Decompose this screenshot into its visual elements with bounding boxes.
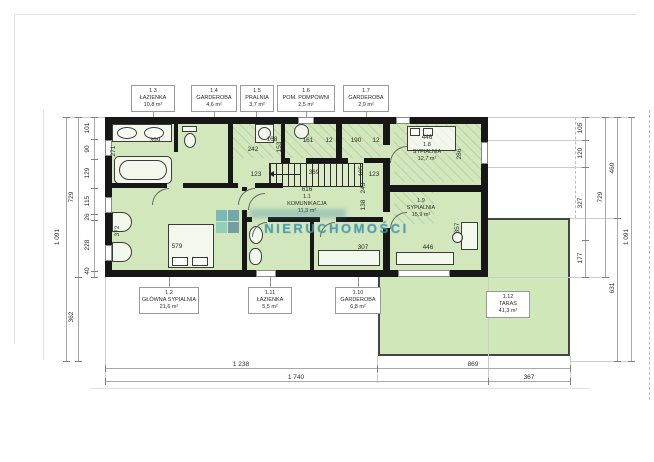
dim-tick xyxy=(582,140,589,141)
wall-corridor-top-seg xyxy=(255,183,283,188)
stairs-direction-line xyxy=(274,174,300,175)
dim-tick xyxy=(91,214,98,215)
dim-line xyxy=(585,117,586,277)
room-area: 2,5 m² xyxy=(280,102,332,109)
dim-line xyxy=(617,117,618,361)
room-area: 4,6 m² xyxy=(194,102,234,109)
extension-line xyxy=(488,117,631,118)
dim-stairs-length: 369 xyxy=(301,169,327,177)
dim-left-40: 40 xyxy=(84,261,92,281)
dim-bottom-367: 367 xyxy=(509,374,549,382)
extension-line xyxy=(488,140,585,141)
wall-outer-right xyxy=(481,117,488,277)
dim-left-26: 26 xyxy=(84,207,92,227)
room-id: 1.10 xyxy=(338,290,378,297)
toilet-tank xyxy=(182,126,197,132)
dim-bedroom19-height: 357 xyxy=(454,218,462,238)
desk-icon xyxy=(461,222,478,250)
pillow xyxy=(172,257,188,266)
room-area: 15,9 m² xyxy=(392,212,450,219)
dim-left-129: 129 xyxy=(84,163,92,183)
watermark-logo-icon xyxy=(216,222,227,233)
label-box-110: 1.10 GARDEROBA 6,8 m² xyxy=(335,287,381,314)
wall-top-rooms-bottom-seg xyxy=(364,158,390,163)
window xyxy=(105,245,112,261)
dim-right-177: 177 xyxy=(577,248,585,268)
dim-pralnia-width: 242 xyxy=(240,146,266,154)
label-box-12: 1.2 GŁÓWNA SYPIALNIA 21,6 m² xyxy=(139,287,199,314)
room-name: GARDEROBA xyxy=(338,297,378,304)
dim-tick xyxy=(628,117,635,118)
dim-line xyxy=(66,117,67,361)
wall-outer-top xyxy=(105,117,488,124)
room-name: PRALNIA xyxy=(243,95,271,102)
dim-garderoba10-width: 307 xyxy=(350,244,376,252)
leader-line xyxy=(169,277,170,287)
dim-tick xyxy=(614,361,621,362)
watermark-logo-icon xyxy=(228,210,239,221)
dim-tick xyxy=(602,117,609,118)
room-name: TARAS xyxy=(489,301,527,308)
armchair-icon xyxy=(112,242,132,262)
dim-bath-height: 271 xyxy=(110,141,118,161)
room-id: 1.1 xyxy=(275,194,339,201)
dim-tick xyxy=(63,117,70,118)
dim-left-101: 101 xyxy=(84,118,92,138)
dim-tick xyxy=(91,220,98,221)
room-area: 21,6 m² xyxy=(142,304,196,311)
room-id: 1.6 xyxy=(280,88,332,95)
dim-bottom-869: 869 xyxy=(453,361,493,369)
room-id: 1.5 xyxy=(243,88,271,95)
wardrobe-icon xyxy=(396,252,454,265)
dim-right-327: 327 xyxy=(577,193,585,213)
label-box-14: 1.4 GARDEROBA 4,6 m² xyxy=(191,85,237,112)
extension-line xyxy=(570,361,631,362)
watermark-logo-icon xyxy=(228,222,239,233)
room-name: KOMUNIKACJA xyxy=(275,201,339,208)
dim-tick xyxy=(614,218,621,219)
guide-line-bottom xyxy=(90,388,590,389)
room-area: 3,7 m² xyxy=(243,102,271,109)
wall-bath-garderoba xyxy=(228,117,233,187)
wall-pompownia-garderoba xyxy=(336,117,342,163)
wall-toilet-nook xyxy=(174,117,178,152)
dim-line xyxy=(631,117,632,361)
dim-bedroom18-width: 446 xyxy=(414,134,440,142)
dim-mainbedroom-width: 579 xyxy=(164,243,190,251)
room-id: 1.4 xyxy=(194,88,234,95)
room-area: 2,9 m² xyxy=(346,102,386,109)
dim-bedroom19-width: 446 xyxy=(415,244,441,252)
dim-tick xyxy=(582,167,589,168)
bathtub-inner xyxy=(119,160,167,180)
dim-tick xyxy=(91,277,98,278)
dim-line xyxy=(94,117,95,277)
dim-line xyxy=(105,381,570,382)
dim-tick xyxy=(570,378,571,385)
label-box-111: 1.11 ŁAZIENKA 5,5 m² xyxy=(248,287,292,314)
watermark-blurred-line xyxy=(250,209,346,218)
extension-line xyxy=(488,167,585,168)
dim-line xyxy=(605,117,606,277)
dim-right-729: 729 xyxy=(597,187,605,207)
dim-right-1091: 1 091 xyxy=(623,227,631,247)
dim-tick xyxy=(582,277,589,278)
wall-bedroom-right xyxy=(242,210,247,270)
window xyxy=(481,142,488,164)
room-area: 6,8 m² xyxy=(338,304,378,311)
wardrobe-icon xyxy=(318,250,380,266)
watermark-logo-icon xyxy=(216,210,227,221)
wall-spine-seg xyxy=(383,117,390,145)
dim-bath-width: 399 xyxy=(142,137,168,145)
dim-tick xyxy=(628,361,635,362)
room-id: 1.8 xyxy=(398,142,456,149)
dim-tick xyxy=(91,139,98,140)
dim-tick xyxy=(570,365,571,372)
dim-tick xyxy=(91,117,98,118)
wall-corridor-top-seg xyxy=(183,183,238,188)
dim-wall-12: 12 xyxy=(322,137,336,145)
dim-tick xyxy=(91,271,98,272)
dim-tick xyxy=(488,378,489,385)
dim-right-460: 460 xyxy=(609,158,617,178)
window xyxy=(298,117,314,124)
label-box-15: 1.5 PRALNIA 3,7 m² xyxy=(240,85,274,112)
room-area: 41,3 m² xyxy=(489,308,527,315)
pillow xyxy=(192,257,208,266)
room-id: 1.11 xyxy=(251,290,289,297)
room-name: GARDEROBA xyxy=(346,95,386,102)
dim-bedroom18-height: 286 xyxy=(456,144,464,164)
room-id: 1.9 xyxy=(392,198,450,205)
wall-top-rooms-bottom-seg xyxy=(306,158,348,163)
dim-left-228: 228 xyxy=(84,235,92,255)
dim-153: 153 xyxy=(276,137,284,157)
wall-spine-seg xyxy=(383,162,390,212)
room-name: SYPIALNIA xyxy=(392,205,450,212)
window xyxy=(396,117,410,124)
room-name: GARDEROBA xyxy=(194,95,234,102)
room-name: SYPIALNIA xyxy=(398,149,456,156)
sheet-dashed-right xyxy=(649,110,650,400)
label-box-17: 1.7 GARDEROBA 2,9 m² xyxy=(343,85,389,112)
window xyxy=(256,270,276,277)
dim-left-90: 90 xyxy=(84,139,92,159)
toilet-icon xyxy=(249,248,262,265)
watermark-brand-text: NIERUCHOMOŚCI xyxy=(244,221,429,236)
floor-plan-page: 399 271 168 242 153 161 12 190 12 446 28… xyxy=(0,0,654,462)
dim-left-729: 729 xyxy=(68,187,76,207)
dim-tick xyxy=(91,159,98,160)
leader-line xyxy=(270,277,271,287)
guide-line-left xyxy=(43,110,44,360)
dim-right-105: 105 xyxy=(577,118,585,138)
dim-bottom-1740: 1 740 xyxy=(276,374,316,382)
wall-bedrooms-divider xyxy=(390,185,481,192)
dim-tick xyxy=(614,117,621,118)
room-area: 12,7 m² xyxy=(398,156,456,163)
room-label-18: 1.8 SYPIALNIA 12,7 m² xyxy=(398,142,456,163)
dim-line xyxy=(78,117,79,361)
dim-left-1091: 1 091 xyxy=(54,227,62,247)
room-name: ŁAZIENKA xyxy=(134,95,172,102)
dim-left-362: 362 xyxy=(68,307,76,327)
leader-line xyxy=(358,277,359,287)
room-id: 1.12 xyxy=(489,294,527,301)
dim-138: 138 xyxy=(360,195,368,215)
sink-icon xyxy=(117,127,137,139)
terrace-door xyxy=(398,270,450,277)
extension-line xyxy=(570,218,617,219)
dim-line xyxy=(105,368,570,369)
dim-pompownia-width: 161 xyxy=(295,137,321,145)
dim-bottom-1238: 1 238 xyxy=(221,361,261,369)
dim-tick xyxy=(75,117,82,118)
dim-tick xyxy=(377,365,378,372)
room-name: POM. POMPOWNI xyxy=(280,95,332,102)
room-label-19: 1.9 SYPIALNIA 15,9 m² xyxy=(392,198,450,219)
sheet-border-left xyxy=(14,14,15,344)
stairs-arrow-icon xyxy=(269,171,274,177)
dim-tick xyxy=(91,188,98,189)
label-box-taras: 1.12 TARAS 41,3 m² xyxy=(486,291,530,318)
room-id: 1.7 xyxy=(346,88,386,95)
dim-tick xyxy=(105,365,106,372)
dim-tick xyxy=(105,378,106,385)
dim-tick xyxy=(602,277,609,278)
dim-tick xyxy=(75,361,82,362)
label-box-13: 1.3 ŁAZIENKA 10,8 m² xyxy=(131,85,175,112)
room-id: 1.3 xyxy=(134,88,172,95)
sheet-border-top xyxy=(14,14,636,15)
dim-right-631: 631 xyxy=(609,278,617,298)
dim-right-120: 120 xyxy=(577,143,585,163)
window xyxy=(105,197,112,213)
label-box-16: 1.6 POM. POMPOWNI 2,5 m² xyxy=(277,85,335,112)
dim-stairs-left: 123 xyxy=(246,171,266,179)
dim-tick xyxy=(63,361,70,362)
dim-mainbedroom-height: 372 xyxy=(114,221,122,241)
dim-garderoba7-width: 190 xyxy=(343,137,369,145)
dim-tick xyxy=(75,277,82,278)
room-name: GŁÓWNA SYPIALNIA xyxy=(142,297,196,304)
wall-corridor-top-seg xyxy=(105,183,167,188)
dim-corridor-width: 616 xyxy=(294,186,320,194)
room-area: 5,5 m² xyxy=(251,304,289,311)
dim-tick xyxy=(582,240,589,241)
room-area: 10,8 m² xyxy=(134,102,172,109)
dim-wall-12: 12 xyxy=(369,137,383,145)
room-name: ŁAZIENKA xyxy=(251,297,289,304)
toilet-icon xyxy=(184,133,196,148)
wall-top-rooms-bottom-seg xyxy=(281,158,290,163)
